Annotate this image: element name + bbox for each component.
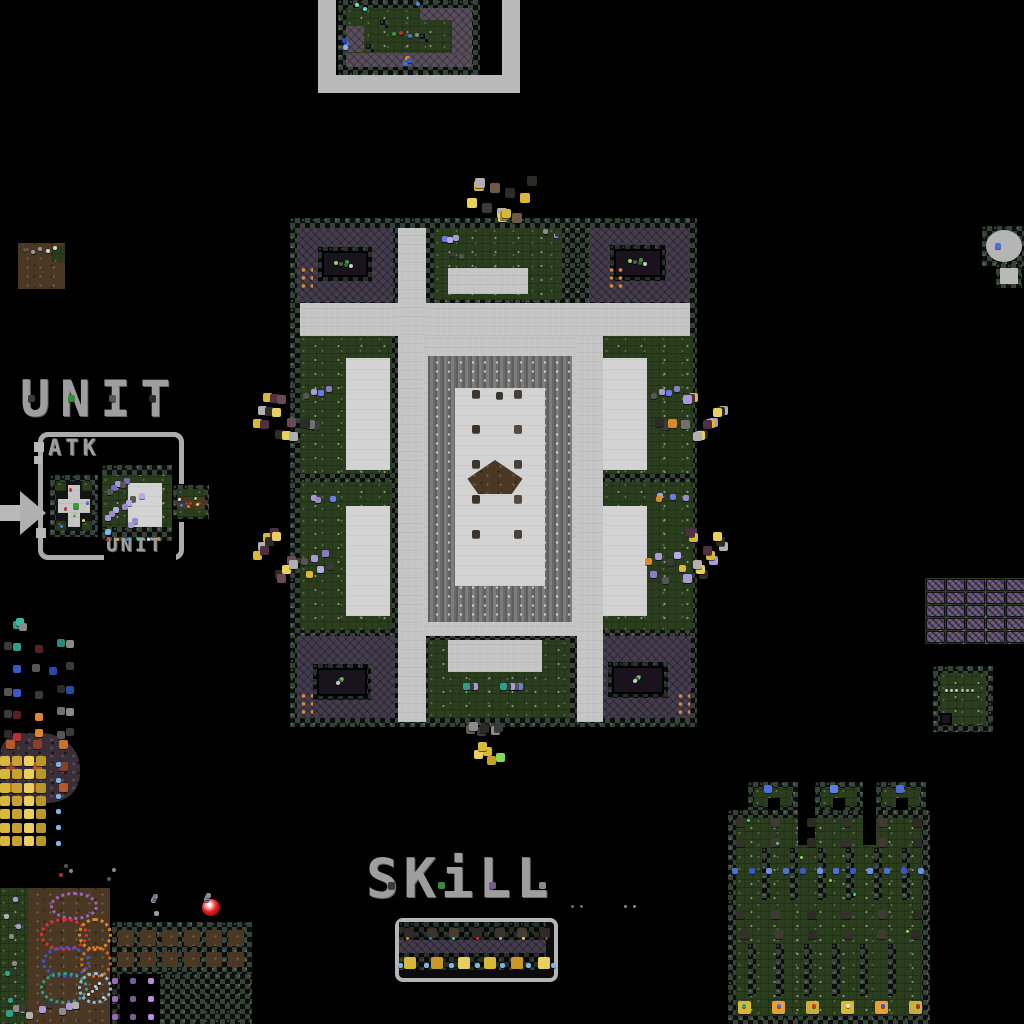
west-field-units-3[interactable] [300,490,340,508]
east-grid-blocks-block[interactable] [927,632,944,642]
east-grid-blocks-block[interactable] [1007,580,1024,590]
rock-camp-units-unit[interactable] [6,740,15,749]
sw-grid-guards-unit[interactable] [130,996,136,1002]
sw-storage-cell[interactable] [184,930,200,946]
east-cluster-south-unit[interactable] [703,546,712,555]
east-grid-blocks-block[interactable] [927,593,944,603]
east-grid-blocks-block[interactable] [947,580,964,590]
east-grid-blocks-block[interactable] [1007,606,1024,616]
sw-storage-cell[interactable] [184,952,200,967]
east-grid-blocks-block[interactable] [927,606,944,616]
tl-room-units-unit[interactable] [339,262,343,266]
east-grid-blocks-block[interactable] [967,606,984,616]
south-gate-gold-units[interactable] [472,742,512,768]
west-field-units-2-unit[interactable] [301,419,310,428]
east-cluster-north-unit[interactable] [703,420,712,429]
east-grid-blocks-block[interactable] [987,580,1004,590]
unit-map-swarm-unit[interactable] [128,522,134,528]
west-depot-row-5-unit[interactable] [35,713,43,721]
courtyard-guards-unit[interactable] [472,495,480,503]
east-grid-blocks-block[interactable] [947,619,964,629]
west-cluster-north[interactable] [252,388,302,446]
west-depot-row-6-unit[interactable] [66,728,74,736]
north-field-lavender-units-unit[interactable] [453,235,459,241]
sw-storage-cell[interactable] [162,952,178,967]
east-cluster-north-unit[interactable] [713,408,722,417]
stray-units-south-unit[interactable] [580,905,583,908]
tr-room-units-unit[interactable] [633,260,637,264]
unit-text-units-unit[interactable] [28,395,35,402]
sw-grid-guards-unit[interactable] [112,978,118,984]
annex-units-unit[interactable] [196,503,199,506]
sw-storage-cell[interactable] [118,930,134,946]
sw-scatter-units-1-unit[interactable] [112,868,116,872]
tr-room-units[interactable] [628,253,648,269]
west-cluster-south[interactable] [252,528,302,588]
nw-dirt-units-unit[interactable] [23,248,27,252]
east-field-units-2-unit[interactable] [668,419,677,428]
north-gate-cluster-unit[interactable] [512,213,522,223]
sw-dirt-south-units[interactable] [2,1000,82,1020]
stray-units-south-unit[interactable] [624,905,627,908]
east-grid-blocks-block[interactable] [967,619,984,629]
east-field-units-4-unit[interactable] [650,571,657,578]
annex-units-unit[interactable] [180,504,183,507]
west-depot-row-4-unit[interactable] [66,686,74,694]
west-field-units-4-unit[interactable] [327,563,334,570]
west-cluster-south-unit[interactable] [260,546,269,555]
east-field-units-1-unit[interactable] [666,390,672,396]
east-field-units-2[interactable] [650,416,692,444]
annex-units-unit[interactable] [187,505,190,508]
se-tower-beacons[interactable] [764,784,904,794]
sw-scatter-units-2[interactable] [140,893,250,917]
east-cluster-south-unit[interactable] [686,528,695,537]
unit-map-swarm[interactable] [104,476,146,530]
sw-green-strip-units-unit[interactable] [9,934,14,939]
bl-room-units-unit[interactable] [336,681,340,685]
skill-text-units-unit[interactable] [539,882,546,889]
ts-top-cyan-units-unit[interactable] [355,3,359,7]
unit-map-swarm-unit[interactable] [120,482,126,488]
sw-dirt-south-units-unit[interactable] [72,1002,79,1009]
gold-legion-unit[interactable] [12,823,22,833]
sw-storage-cell[interactable] [228,930,244,946]
sw-storage-cell[interactable] [228,952,244,967]
gold-legion-unit[interactable] [36,823,46,833]
sw-scatter-units-1-unit[interactable] [69,869,73,873]
tl-room-units-unit[interactable] [344,263,348,267]
sw-storage-cell[interactable] [206,952,222,967]
sw-green-strip-units-unit[interactable] [13,897,18,902]
sw-grid-guards-unit[interactable] [130,1014,136,1020]
ts-center-units-unit[interactable] [399,31,403,35]
west-field-units-3-unit[interactable] [330,496,336,502]
east-field-units-2-unit[interactable] [655,418,664,427]
north-field-lavender-units[interactable] [442,230,464,254]
east-field-units-4-unit[interactable] [674,552,681,559]
sw-storage-cell[interactable] [140,952,156,967]
west-depot-row-3-unit[interactable] [13,665,21,673]
east-grid-blocks-block[interactable] [967,632,984,642]
sw-grid-guards-unit[interactable] [112,996,118,1002]
west-field-units-1-unit[interactable] [311,389,317,395]
courtyard-extra-guard[interactable] [494,390,504,400]
stray-units-south-unit[interactable] [571,905,574,908]
sw-scatter-units-1-unit[interactable] [64,864,68,868]
north-gate-cluster-unit[interactable] [467,198,477,208]
br-room-units-unit[interactable] [633,679,637,683]
west-cluster-north-unit[interactable] [277,395,286,404]
nw-dirt-units-unit[interactable] [38,247,42,251]
annex-units-unit[interactable] [178,498,181,501]
north-gate-cluster-unit[interactable] [527,176,537,186]
gold-legion-unit[interactable] [0,836,10,846]
west-depot-row-5-unit[interactable] [13,711,21,719]
north-field-right-units-unit[interactable] [555,231,560,236]
gold-legion-unit[interactable] [36,809,46,819]
skill-text-units-unit[interactable] [438,882,445,889]
tl-room-units-unit[interactable] [334,261,338,265]
sw-green-strip-units-unit[interactable] [4,914,9,919]
rock-camp-units-unit[interactable] [59,740,68,749]
east-grid-blocks[interactable] [927,580,1024,642]
ts-center-units[interactable] [388,26,422,48]
west-cluster-north-unit[interactable] [289,432,298,441]
unit-text-units-unit[interactable] [109,395,116,402]
sw-grid-guards-unit[interactable] [112,1014,118,1020]
west-depot-row-3-unit[interactable] [49,667,57,675]
sw-grid-guards-unit[interactable] [130,978,136,984]
gold-legion-unit[interactable] [36,769,46,779]
gold-legion-unit[interactable] [12,756,22,766]
west-field-units-4-unit[interactable] [322,550,329,557]
gold-legion-unit[interactable] [0,796,10,806]
north-field-dark-units[interactable] [450,252,466,262]
west-depot-row-1[interactable] [2,616,60,632]
east-field-units-1-unit[interactable] [651,393,657,399]
east-grid-blocks-block[interactable] [947,632,964,642]
gold-legion-unit[interactable] [0,756,10,766]
ts-left-blue-unit-unit[interactable] [343,45,348,50]
courtyard-guards-unit[interactable] [472,425,480,433]
east-grid-blocks-block[interactable] [927,580,944,590]
skill-text-units-unit[interactable] [489,882,496,889]
unit-map-swarm-unit[interactable] [107,489,113,495]
south-field-units-unit[interactable] [500,683,507,690]
north-field-dark-units-unit[interactable] [459,254,464,259]
east-field-units-1[interactable] [648,384,692,400]
tr-room-units-unit[interactable] [628,259,632,263]
west-depot-row-4[interactable] [2,684,94,700]
east-cluster-north-unit[interactable] [693,432,702,441]
gold-legion-unit[interactable] [24,836,34,846]
ts-center-units-unit[interactable] [408,34,412,38]
ts-left-blue-unit-unit[interactable] [342,38,347,43]
ts-center-units-unit[interactable] [415,33,419,37]
west-depot-row-2-unit[interactable] [13,643,21,651]
ts-bottom-units[interactable] [392,56,448,68]
gold-legion-unit[interactable] [12,836,22,846]
north-gate-gold-unit[interactable] [487,208,513,230]
west-depot-row-2-unit[interactable] [57,639,65,647]
south-gate-gold-units-unit[interactable] [496,753,505,762]
gold-legion-unit[interactable] [0,823,10,833]
east-grid-blocks-block[interactable] [987,632,1004,642]
ts-center-units-unit[interactable] [392,32,396,36]
west-cluster-south-unit[interactable] [289,560,298,569]
gold-legion-unit[interactable] [36,796,46,806]
east-field-units-4-unit[interactable] [645,558,652,565]
unit-text-units[interactable] [28,392,156,404]
west-depot-row-4-unit[interactable] [57,685,65,693]
east-field-units-2-unit[interactable] [681,420,690,429]
east-field-units-3-unit[interactable] [656,496,662,502]
sw-dirt-south-units-unit[interactable] [6,1010,13,1017]
gold-legion-unit[interactable] [24,769,34,779]
gold-legion[interactable] [0,756,46,846]
west-field-units-4-unit[interactable] [306,571,313,578]
gold-legion-unit[interactable] [24,756,34,766]
south-field-units[interactable] [460,678,524,722]
east-field-units-3[interactable] [646,488,692,506]
south-gate-cluster-unit[interactable] [480,724,489,733]
sw-scatter-units-2-unit[interactable] [153,894,158,899]
sw-dirt-south-units-unit[interactable] [26,1012,33,1019]
ts-top-cyan-units[interactable] [352,2,470,12]
west-depot-row-6-unit[interactable] [57,731,65,739]
west-field-units-2[interactable] [300,416,338,444]
south-gate-cluster-unit[interactable] [469,722,478,731]
courtyard-guards-unit[interactable] [514,530,522,538]
se-tower-beacons-unit[interactable] [764,785,772,793]
gold-legion-unit[interactable] [12,783,22,793]
gold-legion-unit[interactable] [24,809,34,819]
east-grid-blocks-block[interactable] [947,593,964,603]
unit-map-swarm-unit[interactable] [122,504,128,510]
se-tower-beacons-unit[interactable] [830,785,838,793]
north-field-dark-units-unit[interactable] [450,252,455,257]
south-gate-cluster-unit[interactable] [494,723,503,732]
courtyard-extra-guard-unit[interactable] [496,392,503,399]
west-field-units-1[interactable] [300,384,344,400]
ts-top-cyan-units-unit[interactable] [363,7,367,11]
sw-grid-guards-unit[interactable] [148,978,154,984]
annex-units-unit[interactable] [194,497,197,500]
east-field-units-4-unit[interactable] [679,565,686,572]
east-field-units-1-unit[interactable] [659,389,665,395]
east-grid-blocks-block[interactable] [987,606,1004,616]
sw-scatter-units-1[interactable] [58,864,120,882]
north-gate-cluster-unit[interactable] [505,188,515,198]
sw-scatter-units-1-unit[interactable] [107,877,111,881]
sw-dirt-south-units-unit[interactable] [39,1006,46,1013]
sw-storage-cell[interactable] [162,930,178,946]
ts-bottom-units-unit[interactable] [407,58,412,63]
sw-dirt-south-units-unit[interactable] [59,1008,66,1015]
nw-dirt-units[interactable] [20,245,62,287]
nw-dirt-units-unit[interactable] [46,249,50,253]
west-depot-row-1-unit[interactable] [19,623,27,631]
east-field-units-3-unit[interactable] [670,494,676,500]
annex-units[interactable] [178,497,204,509]
north-gate-gold-unit-unit[interactable] [502,209,511,218]
courtyard-guards-unit[interactable] [514,425,522,433]
sw-green-strip-units-unit[interactable] [5,971,10,976]
west-depot-row-2-unit[interactable] [66,640,74,648]
gold-legion-unit[interactable] [24,783,34,793]
west-field-units-4-unit[interactable] [301,558,308,565]
skill-text-units[interactable] [388,878,546,892]
east-field-units-4[interactable] [644,548,692,586]
west-depot-row-3-unit[interactable] [66,662,74,670]
north-field-right-units[interactable] [543,228,561,246]
east-grid-blocks-block[interactable] [1007,632,1024,642]
courtyard-guards-unit[interactable] [472,460,480,468]
west-field-units-1-unit[interactable] [326,386,332,392]
nw-dirt-units-unit[interactable] [53,246,57,250]
east-field-units-4-unit[interactable] [655,553,662,560]
east-grid-blocks-block[interactable] [1007,619,1024,629]
game-map-viewport[interactable]: UNIT ATK UNIT SKiLL [0,0,1024,1024]
west-depot-row-2-unit[interactable] [4,642,12,650]
unit-map-swarm-unit[interactable] [139,493,145,499]
courtyard-guards-unit[interactable] [472,390,480,398]
north-gate-cluster-unit[interactable] [475,178,485,188]
east-cluster-south-unit[interactable] [713,532,722,541]
gold-legion-unit[interactable] [12,769,22,779]
east-grid-blocks-block[interactable] [927,619,944,629]
sw-scatter-units-2-unit[interactable] [206,893,211,898]
east-field-units-1-unit[interactable] [674,386,680,392]
south-gate-gold-units-unit[interactable] [487,756,496,765]
courtyard-guards-unit[interactable] [514,390,522,398]
gold-legion-unit[interactable] [24,823,34,833]
west-field-units-4[interactable] [300,550,344,586]
sw-green-strip-units-unit[interactable] [12,961,17,966]
west-field-units-4-unit[interactable] [317,566,324,573]
east-grid-blocks-block[interactable] [987,593,1004,603]
west-cluster-south-unit[interactable] [272,532,281,541]
sw-dirt-south-units-unit[interactable] [46,1001,53,1008]
west-field-units-1-unit[interactable] [318,390,324,396]
west-depot-row-2[interactable] [2,638,94,654]
south-gate-gold-units-unit[interactable] [478,742,487,751]
ts-left-blue-unit[interactable] [342,36,356,52]
sw-grid-guards[interactable] [112,978,154,1020]
west-depot-row-2-unit[interactable] [35,645,43,653]
unit-text-units-unit[interactable] [68,395,75,402]
west-depot-row-6-unit[interactable] [4,730,12,738]
gold-legion-unit[interactable] [0,783,10,793]
east-field-units-4-unit[interactable] [667,559,674,566]
ne-pad-unit-unit[interactable] [995,243,1001,249]
west-field-units-3-unit[interactable] [315,497,321,503]
west-depot-row-5[interactable] [2,706,94,722]
unit-text-units-unit[interactable] [149,395,156,402]
courtyard-guards-unit[interactable] [472,530,480,538]
west-cluster-south-unit[interactable] [277,574,286,583]
west-depot-row-3[interactable] [2,660,80,676]
west-depot-row-6-unit[interactable] [35,729,43,737]
tl-room-units-unit[interactable] [349,264,353,268]
sw-dirt-south-units-unit[interactable] [19,1004,26,1011]
stray-units-south-unit[interactable] [633,905,636,908]
courtyard-guards-unit[interactable] [514,460,522,468]
west-depot-row-4-unit[interactable] [13,689,21,697]
sw-storage-cell[interactable] [118,952,134,967]
east-grid-blocks-block[interactable] [967,593,984,603]
north-gate-cluster-unit[interactable] [520,193,530,203]
west-depot-row-5-unit[interactable] [66,708,74,716]
west-depot-row-5-unit[interactable] [4,710,12,718]
east-grid-blocks-block[interactable] [967,580,984,590]
sw-green-strip-units-unit[interactable] [16,924,21,929]
unit-map-swarm-unit[interactable] [105,515,111,521]
gold-legion-unit[interactable] [36,756,46,766]
gold-legion-unit[interactable] [0,769,10,779]
gold-legion-unit[interactable] [36,783,46,793]
sw-storage-cell[interactable] [140,930,156,946]
tl-room-units[interactable] [334,255,354,271]
west-depot-row-4-unit[interactable] [4,688,12,696]
skill-text-units-unit[interactable] [388,882,395,889]
gold-legion-unit[interactable] [12,809,22,819]
br-room-units[interactable] [626,670,648,686]
se-tower-beacons-unit[interactable] [896,785,904,793]
courtyard-guards-unit[interactable] [514,495,522,503]
ts-top-cyan-units-unit[interactable] [416,2,420,6]
west-cluster-north-unit[interactable] [272,408,281,417]
sw-grid-guards-unit[interactable] [148,1014,154,1020]
east-grid-blocks-block[interactable] [947,606,964,616]
west-depot-row-3-unit[interactable] [32,664,40,672]
north-field-lavender-units-unit[interactable] [447,237,453,243]
tr-room-units-unit[interactable] [638,261,642,265]
east-grid-blocks-block[interactable] [1007,593,1024,603]
east-cluster-south-unit[interactable] [693,560,702,569]
nw-dirt-units-unit[interactable] [31,250,35,254]
east-field-units-3-unit[interactable] [683,495,689,501]
sw-grid-guards-unit[interactable] [148,996,154,1002]
south-field-units-unit[interactable] [463,683,470,690]
east-field-units-4-unit[interactable] [662,577,669,584]
west-field-units-4-unit[interactable] [311,555,318,562]
stray-units-south[interactable] [560,900,660,940]
rock-camp-units-unit[interactable] [33,740,42,749]
west-cluster-north-unit[interactable] [287,418,296,427]
north-field-right-units-unit[interactable] [543,229,548,234]
tr-room-units-unit[interactable] [643,262,647,266]
gold-legion-unit[interactable] [12,796,22,806]
sw-scatter-units-2-unit[interactable] [154,911,159,916]
west-depot-row-4-unit[interactable] [35,691,43,699]
gold-legion-unit[interactable] [0,809,10,819]
sw-scatter-units-1-unit[interactable] [59,873,63,877]
gold-legion-unit[interactable] [36,836,46,846]
south-gate-gold-units-unit[interactable] [474,750,483,759]
ne-pad-unit[interactable] [990,238,1002,250]
west-depot-row-5-unit[interactable] [57,707,65,715]
bl-room-units[interactable] [329,672,351,688]
courtyard-guards[interactable] [472,390,522,538]
north-gate-cluster-unit[interactable] [490,183,500,193]
west-field-units-1-unit[interactable] [303,393,309,399]
east-grid-blocks-block[interactable] [987,619,1004,629]
gold-legion-unit[interactable] [24,796,34,806]
sw-storage-cell[interactable] [206,930,222,946]
west-cluster-north-unit[interactable] [260,420,269,429]
